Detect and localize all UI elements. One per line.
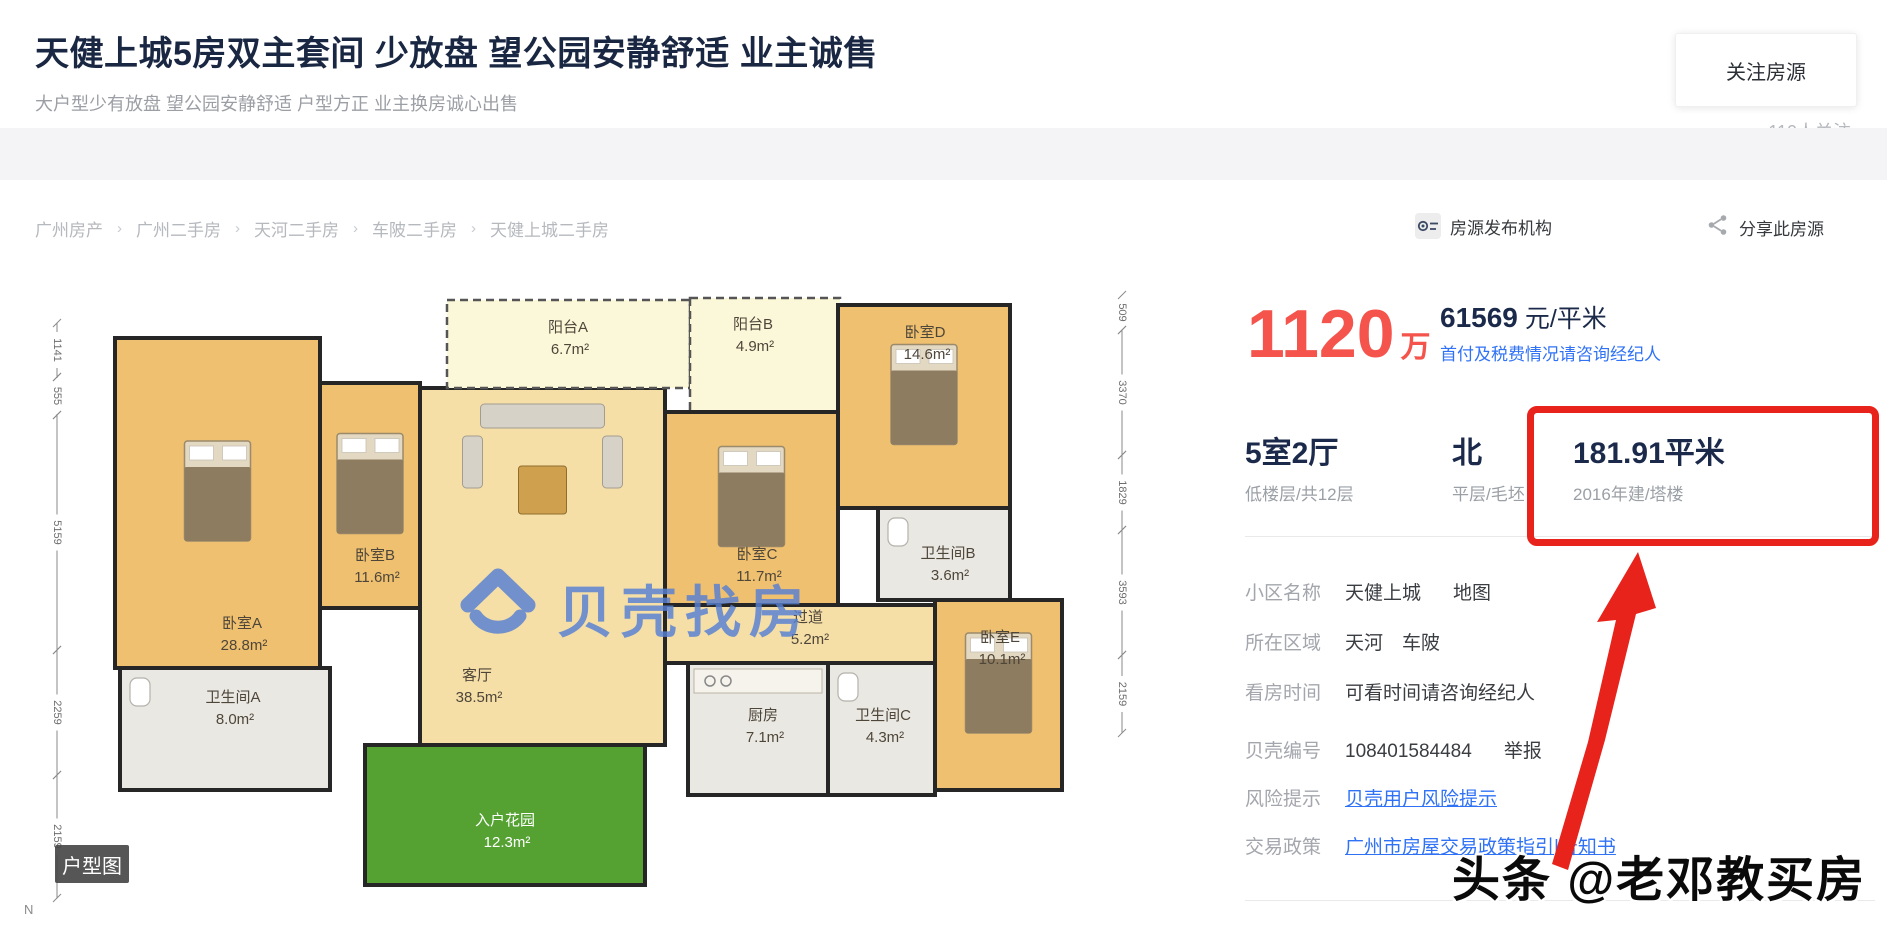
floorplan-image[interactable]: 卧室A28.8m²卧室B11.6m²客厅38.5m²阳台A6.7m²阳台B4.9…	[20, 250, 1160, 922]
svg-text:卧室E: 卧室E	[980, 629, 1020, 646]
breadcrumb-item[interactable]: 广州二手房	[136, 216, 221, 241]
detail-label: 交易政策	[1245, 832, 1345, 859]
svg-text:卧室B: 卧室B	[355, 547, 395, 564]
page-title: 天健上城5房双主套间 少放盘 望公园安静舒适 业主诚售	[35, 26, 878, 75]
svg-text:2259: 2259	[51, 700, 63, 724]
svg-text:1829: 1829	[1116, 480, 1128, 504]
svg-text:卧室D: 卧室D	[905, 324, 946, 341]
publisher-icon	[1415, 213, 1441, 239]
svg-text:38.5m²: 38.5m²	[456, 689, 503, 706]
svg-text:过道: 过道	[793, 609, 823, 626]
detail-value: 可看时间请咨询经纪人	[1345, 678, 1535, 705]
floorplan-tab-badge[interactable]: 户型图	[55, 845, 129, 883]
svg-text:4.9m²: 4.9m²	[736, 338, 774, 355]
price-unit: 万	[1401, 322, 1431, 366]
breadcrumb-separator: ›	[117, 220, 122, 237]
detail-row: 看房时间可看时间请咨询经纪人	[1245, 678, 1535, 705]
svg-text:28.8m²: 28.8m²	[221, 637, 268, 654]
svg-text:2159: 2159	[1116, 682, 1128, 706]
svg-text:厨房: 厨房	[748, 707, 778, 724]
svg-text:入户花园: 入户花园	[475, 812, 535, 829]
detail-label: 所在区域	[1245, 628, 1345, 655]
publisher-info[interactable]: 房源发布机构	[1415, 213, 1552, 239]
svg-text:卧室A: 卧室A	[222, 615, 262, 632]
page-subtitle: 大户型少有放盘 望公园安静舒适 户型方正 业主换房诚心出售	[35, 90, 518, 116]
breadcrumb-item[interactable]: 车陂二手房	[372, 216, 457, 241]
price-per-sqm: 61569 元/平米	[1440, 299, 1607, 335]
svg-text:5159: 5159	[51, 520, 63, 544]
price-per-sqm-unit: 元/平米	[1518, 305, 1607, 333]
detail-label: 小区名称	[1245, 578, 1345, 605]
breadcrumb-separator: ›	[353, 220, 358, 237]
svg-text:卫生间C: 卫生间C	[855, 707, 911, 724]
svg-text:3370: 3370	[1116, 380, 1128, 404]
share-listing[interactable]: 分享此房源	[1706, 213, 1824, 242]
summary-area: 181.91平米	[1573, 428, 1725, 472]
summary-orientation-sub: 平层/毛坯	[1452, 480, 1525, 505]
svg-text:8.0m²: 8.0m²	[216, 711, 254, 728]
compass-north-label: N	[24, 902, 33, 917]
price-block: 1120 万	[1247, 300, 1431, 368]
svg-text:509: 509	[1116, 303, 1128, 321]
summary-layout-sub: 低楼层/共12层	[1245, 480, 1354, 505]
breadcrumb-item[interactable]: 天河二手房	[254, 216, 339, 241]
detail-row: 交易政策广州市房屋交易政策指引|告知书	[1245, 832, 1616, 859]
svg-text:12.3m²: 12.3m²	[484, 834, 531, 851]
svg-text:14.6m²: 14.6m²	[904, 346, 951, 363]
floorplan-drawing: 卧室A28.8m²卧室B11.6m²客厅38.5m²阳台A6.7m²阳台B4.9…	[20, 250, 1160, 922]
price-total: 1120	[1247, 300, 1395, 368]
price-per-sqm-value: 61569	[1440, 302, 1518, 333]
summary-orientation: 北	[1452, 428, 1482, 472]
detail-row: 风险提示贝壳用户风险提示	[1245, 784, 1497, 811]
svg-text:5.2m²: 5.2m²	[791, 631, 829, 648]
detail-value: 108401584484	[1345, 741, 1472, 763]
svg-text:4.3m²: 4.3m²	[866, 729, 904, 746]
share-icon	[1706, 213, 1730, 242]
publisher-label: 房源发布机构	[1450, 214, 1552, 239]
detail-value-link[interactable]: 贝壳用户风险提示	[1345, 784, 1497, 811]
svg-text:3593: 3593	[1116, 580, 1128, 604]
summary-layout: 5室2厅	[1245, 428, 1338, 472]
svg-text:11.6m²: 11.6m²	[354, 569, 400, 586]
summary-area-sub: 2016年建/塔楼	[1573, 480, 1684, 505]
detail-label: 看房时间	[1245, 678, 1345, 705]
detail-extra-link[interactable]: 地图	[1453, 578, 1491, 605]
svg-text:卫生间B: 卫生间B	[920, 545, 975, 562]
detail-extra-link[interactable]: 举报	[1504, 736, 1542, 763]
svg-text:10.1m²: 10.1m²	[979, 651, 1026, 668]
breadcrumb-separator: ›	[235, 220, 240, 237]
svg-text:客厅: 客厅	[462, 667, 492, 684]
detail-label: 风险提示	[1245, 784, 1345, 811]
svg-text:卫生间A: 卫生间A	[205, 689, 260, 706]
detail-row: 贝壳编号108401584484举报	[1245, 736, 1542, 763]
divider	[1245, 536, 1875, 537]
divider	[1245, 900, 1875, 901]
header-separator-band	[0, 128, 1887, 180]
svg-text:555: 555	[51, 387, 63, 405]
breadcrumb: 广州房产›广州二手房›天河二手房›车陂二手房›天健上城二手房	[35, 216, 623, 241]
svg-text:6.7m²: 6.7m²	[551, 341, 589, 358]
svg-text:1141: 1141	[51, 338, 63, 362]
share-label: 分享此房源	[1739, 215, 1824, 240]
svg-text:阳台B: 阳台B	[733, 316, 773, 333]
breadcrumb-item: 天健上城二手房	[490, 216, 609, 241]
detail-value: 天健上城	[1345, 578, 1421, 605]
svg-text:11.7m²: 11.7m²	[736, 568, 782, 585]
svg-text:7.1m²: 7.1m²	[746, 729, 784, 746]
breadcrumb-separator: ›	[471, 220, 476, 237]
area-highlight-box	[1527, 406, 1879, 546]
detail-row: 小区名称天健上城地图	[1245, 578, 1491, 605]
follow-listing-button[interactable]: 关注房源	[1675, 33, 1857, 107]
svg-text:阳台A: 阳台A	[548, 319, 588, 336]
svg-text:卧室C: 卧室C	[737, 546, 778, 563]
detail-value-link[interactable]: 广州市房屋交易政策指引|告知书	[1345, 832, 1616, 859]
breadcrumb-item[interactable]: 广州房产	[35, 216, 103, 241]
svg-text:3.6m²: 3.6m²	[931, 567, 969, 584]
detail-label: 贝壳编号	[1245, 736, 1345, 763]
detail-value: 天河 车陂	[1345, 628, 1440, 655]
detail-row: 所在区域天河 车陂	[1245, 628, 1440, 655]
tax-note-link[interactable]: 首付及税费情况请咨询经纪人	[1440, 340, 1661, 365]
